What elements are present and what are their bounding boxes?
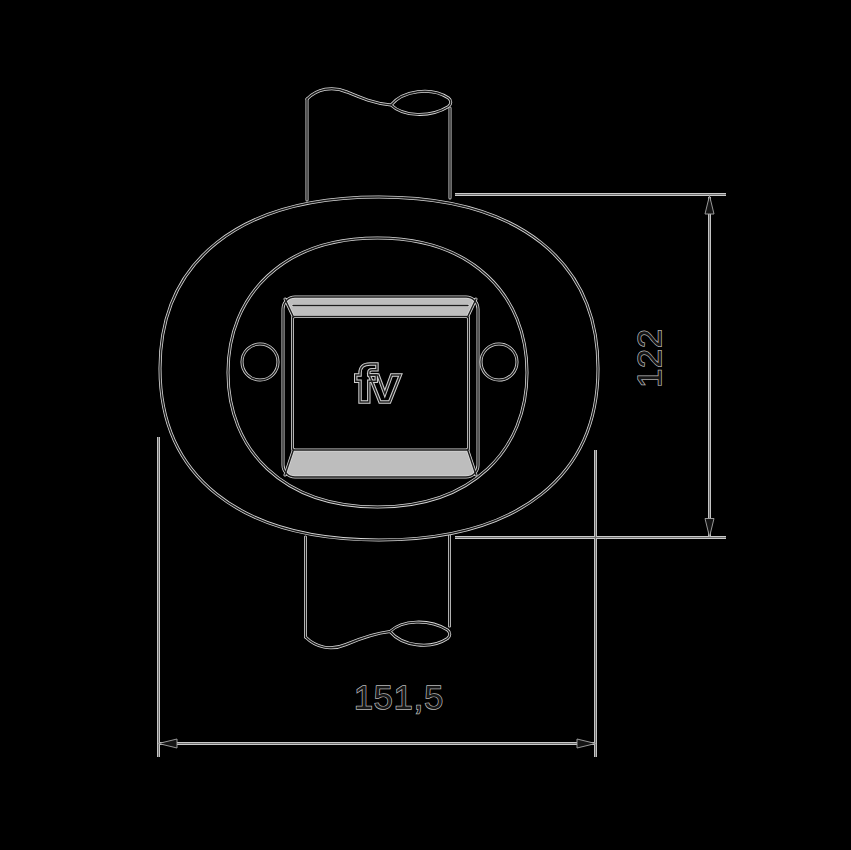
arrowhead-left bbox=[159, 739, 178, 748]
width-dimension-label: 151,5 bbox=[354, 678, 444, 716]
chamfer-band-bottom bbox=[284, 450, 477, 476]
arrowhead-up bbox=[705, 196, 714, 215]
arrowhead-right bbox=[577, 739, 596, 748]
chamfer-band-top bbox=[284, 298, 477, 317]
brand-logo: fv bbox=[355, 356, 401, 414]
technical-drawing-canvas: 122 151,5 fv fv bbox=[0, 0, 851, 850]
valve-plate-technical-drawing: 122 151,5 fv fv bbox=[0, 0, 851, 850]
arrowhead-down bbox=[705, 519, 714, 538]
height-dimension-label: 122 bbox=[630, 328, 668, 388]
